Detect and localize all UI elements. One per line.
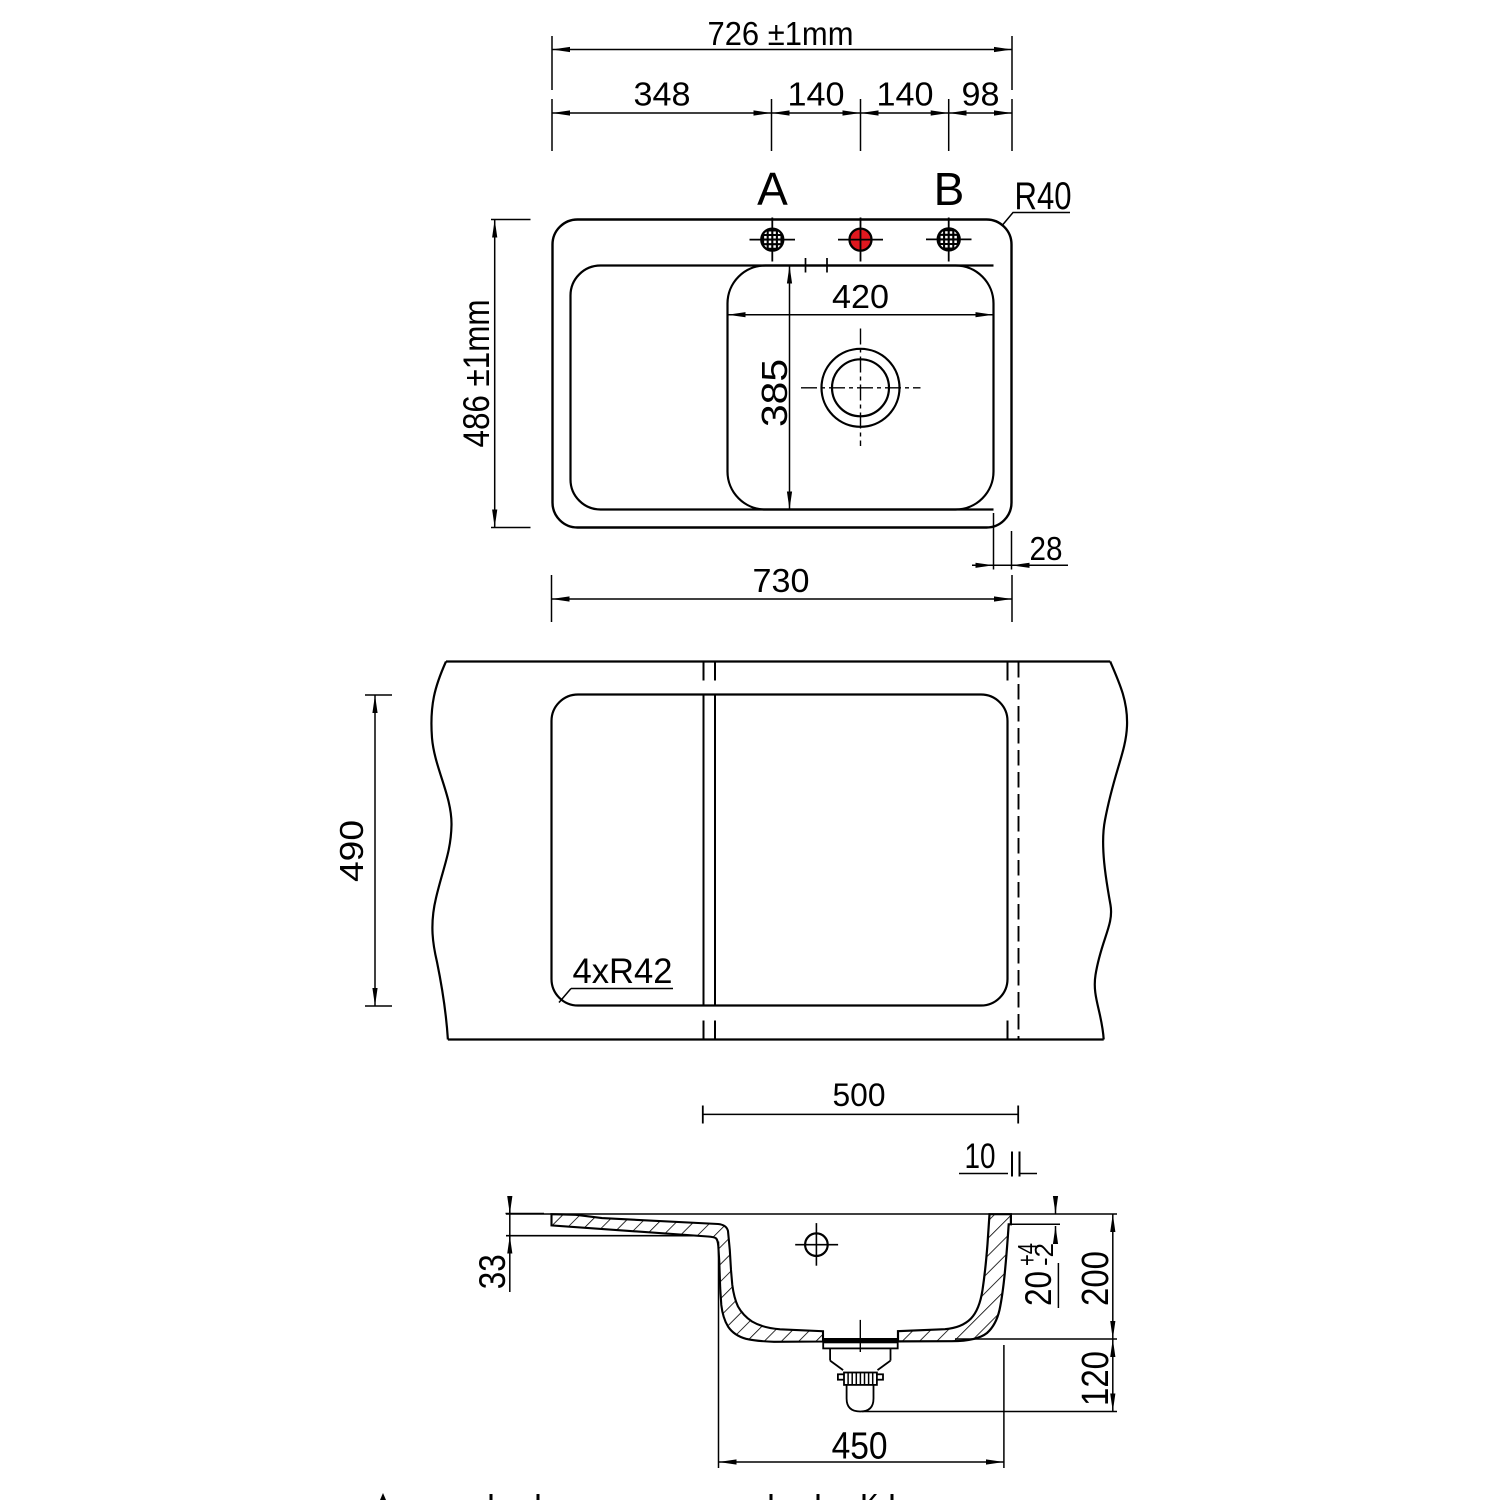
svg-text:4xR42: 4xR42	[573, 952, 673, 991]
svg-text:28: 28	[1030, 530, 1063, 567]
svg-text:33: 33	[472, 1254, 513, 1289]
svg-text:10: 10	[965, 1137, 996, 1176]
svg-text:450: 450	[832, 1426, 888, 1468]
svg-text:98: 98	[962, 76, 1000, 113]
svg-text:420: 420	[832, 278, 889, 315]
svg-text:140: 140	[788, 76, 845, 113]
svg-text:385: 385	[754, 359, 795, 427]
svg-text:490: 490	[333, 820, 370, 882]
svg-text:486 ±1mm: 486 ±1mm	[456, 300, 497, 448]
svg-text:120: 120	[1075, 1351, 1117, 1406]
svg-text:A: A	[757, 163, 788, 215]
svg-text:-2: -2	[1029, 1243, 1059, 1266]
svg-text:20: 20	[1018, 1271, 1059, 1306]
svg-text:348: 348	[634, 76, 691, 113]
svg-text:200: 200	[1075, 1251, 1117, 1306]
svg-text:500: 500	[833, 1077, 886, 1113]
svg-text:730: 730	[753, 562, 810, 599]
svg-text:R40: R40	[1015, 175, 1072, 218]
svg-text:B: B	[934, 163, 965, 215]
svg-text:726 ±1mm: 726 ±1mm	[708, 15, 854, 52]
svg-text:140: 140	[877, 76, 934, 113]
